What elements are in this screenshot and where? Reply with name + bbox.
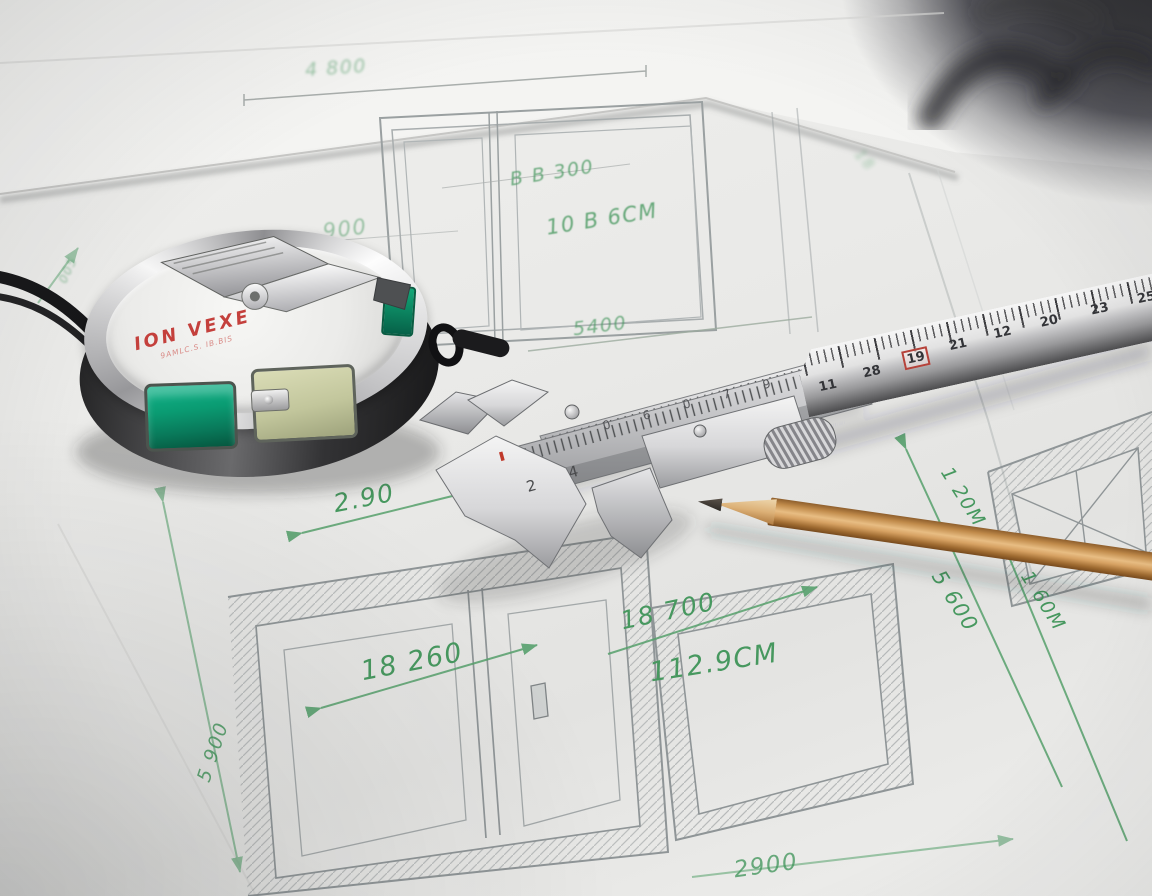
ruler-number: 20 bbox=[1039, 312, 1060, 331]
ruler-number: 21 bbox=[948, 335, 969, 354]
ruler-number: 28 bbox=[861, 363, 882, 382]
ruler-number-red-boxed: 19 bbox=[901, 346, 931, 370]
pencil-graphite-tip bbox=[697, 495, 723, 511]
ruler-number: 25 bbox=[1136, 289, 1152, 308]
ruler-number: 23 bbox=[1089, 300, 1110, 319]
ruler-number: 11 bbox=[817, 377, 838, 396]
caliper-screw bbox=[565, 405, 579, 419]
caliper-screw bbox=[694, 425, 706, 437]
caliper: 2 4 0 6 0 7 9 0 bbox=[0, 0, 1152, 896]
pencil-sharpened-wood bbox=[714, 491, 777, 525]
photo-workbench-scene: 4 800 005 900 B B 300 10 B 6CM 5400 2.90… bbox=[0, 0, 1152, 896]
ruler-number: 12 bbox=[992, 324, 1013, 343]
